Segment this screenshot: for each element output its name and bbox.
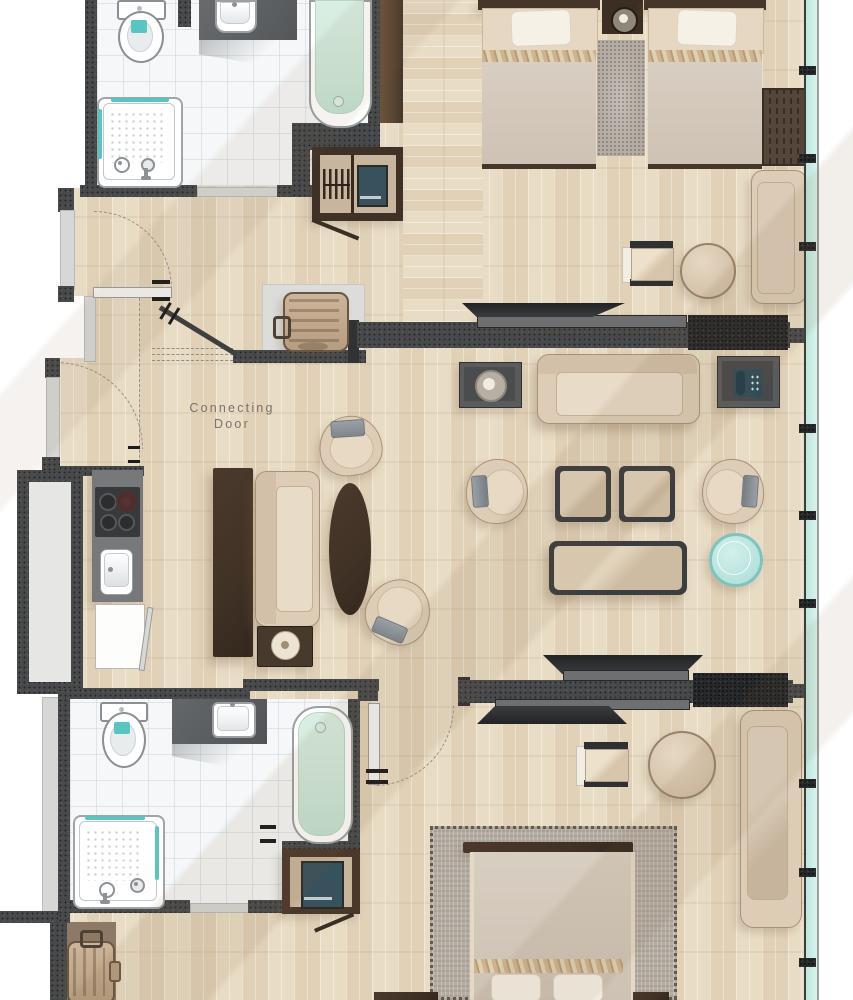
faucet-icon bbox=[232, 2, 237, 7]
glazed-panel bbox=[46, 377, 60, 460]
wall bbox=[58, 286, 74, 302]
wall-column bbox=[688, 315, 788, 350]
door-threshold bbox=[190, 903, 250, 913]
window-mullion bbox=[799, 154, 816, 163]
table-lamp-shade bbox=[483, 378, 495, 390]
exterior-gap bbox=[42, 296, 84, 358]
wall bbox=[58, 688, 250, 699]
suitcase-ribs bbox=[73, 948, 105, 996]
door-jamb bbox=[84, 296, 96, 362]
glazed-panel bbox=[60, 210, 75, 290]
toilet-flush bbox=[131, 20, 147, 33]
window-glass bbox=[806, 0, 817, 1000]
suitcase-handle bbox=[273, 316, 291, 339]
door-post-marker bbox=[260, 839, 276, 843]
wall bbox=[358, 679, 378, 701]
window-mullion bbox=[799, 66, 816, 75]
window-mullion bbox=[799, 868, 816, 877]
chair-arm bbox=[584, 742, 628, 749]
nightstand bbox=[374, 992, 438, 1000]
shower-drain bbox=[114, 157, 130, 173]
armchair bbox=[465, 458, 527, 523]
door-handle-marker bbox=[366, 769, 388, 773]
bathtub-drain bbox=[333, 96, 344, 107]
window-frame-outer bbox=[817, 0, 819, 1000]
door-track-dash bbox=[152, 354, 233, 355]
shower-head-base bbox=[141, 176, 151, 180]
shower-floor-dots bbox=[85, 829, 143, 881]
door-handle-marker bbox=[366, 780, 388, 784]
shower-drain bbox=[130, 878, 145, 893]
safe-icon bbox=[357, 165, 388, 207]
faucet-icon bbox=[108, 567, 113, 572]
wall bbox=[58, 688, 70, 923]
coffee-table-top bbox=[554, 546, 682, 590]
burner-icon bbox=[116, 491, 137, 512]
pillow bbox=[510, 9, 571, 47]
chaise-cushion bbox=[757, 182, 795, 294]
window-mullion bbox=[799, 242, 816, 251]
round-table bbox=[680, 243, 736, 299]
wall bbox=[0, 911, 58, 923]
wall-column bbox=[693, 673, 788, 707]
safe-handle bbox=[360, 196, 381, 199]
sofa-seat bbox=[556, 372, 683, 416]
table-lamp-shade bbox=[619, 14, 628, 23]
suitcase-side-handle bbox=[109, 961, 121, 982]
door-handle-marker bbox=[152, 280, 170, 284]
burner-icon bbox=[99, 493, 117, 511]
bathroom-sink-basin bbox=[217, 706, 249, 731]
door-track-dash bbox=[152, 360, 233, 361]
door-post-marker bbox=[128, 446, 140, 449]
window-mullion bbox=[799, 599, 816, 608]
wall bbox=[248, 900, 283, 913]
shower-glass bbox=[155, 826, 159, 880]
oval-coffee-table bbox=[329, 483, 371, 615]
toilet-flush bbox=[114, 722, 130, 734]
tv-screen-living bbox=[563, 670, 689, 681]
shower-head-base bbox=[100, 900, 110, 904]
telephone-keypad bbox=[750, 374, 761, 392]
wardrobe-divider bbox=[351, 155, 354, 213]
connecting-door-label-line1: Connecting bbox=[172, 400, 292, 416]
round-table bbox=[648, 731, 716, 799]
sofa-seat bbox=[276, 486, 313, 612]
suitcase-shadow bbox=[298, 342, 328, 351]
twin-beds-rug bbox=[597, 40, 645, 156]
wood-floor-vestibule bbox=[403, 0, 483, 322]
wall bbox=[45, 358, 60, 378]
shower-drain-dot bbox=[118, 161, 122, 165]
shower-floor-dots bbox=[109, 111, 167, 163]
faucet-icon bbox=[230, 702, 235, 707]
duvet bbox=[648, 62, 762, 167]
wall bbox=[50, 923, 67, 1000]
window-mullion bbox=[799, 779, 816, 788]
pillow bbox=[330, 419, 365, 438]
shower-head-icon bbox=[99, 882, 115, 898]
armchair bbox=[701, 458, 763, 523]
kitchen-appliance bbox=[95, 604, 145, 669]
exterior-gap bbox=[60, 0, 85, 188]
door-handle-marker bbox=[152, 297, 170, 301]
door-post-marker bbox=[260, 825, 276, 829]
shower-glass bbox=[85, 816, 145, 820]
chaise-cushion bbox=[747, 726, 788, 900]
chair-arm bbox=[630, 241, 673, 248]
nightstand bbox=[633, 992, 669, 1000]
window-mullion bbox=[799, 958, 816, 967]
bed-foot bbox=[482, 164, 596, 169]
ottoman-top bbox=[560, 471, 606, 517]
connecting-door-label: Connecting Door bbox=[172, 400, 292, 432]
bed-runner bbox=[648, 50, 762, 62]
armchair bbox=[315, 412, 383, 478]
shower-glass bbox=[111, 98, 169, 102]
console-table bbox=[213, 468, 253, 657]
door-post-marker bbox=[128, 460, 140, 463]
sofa-back bbox=[256, 472, 276, 624]
minibar-icon bbox=[301, 861, 344, 909]
service-shaft-void bbox=[29, 482, 71, 682]
wall bbox=[85, 0, 97, 197]
bed-foot bbox=[648, 164, 762, 169]
glass-table-ring bbox=[717, 541, 751, 575]
pillow bbox=[741, 475, 759, 508]
wall bbox=[58, 188, 74, 212]
bed-runner bbox=[482, 50, 596, 62]
bathtub-drain bbox=[315, 722, 326, 733]
window-mullion bbox=[799, 424, 816, 433]
wall bbox=[178, 0, 191, 27]
minibar-handle bbox=[304, 897, 332, 900]
chair-seat bbox=[585, 749, 629, 782]
hotel-suite-floor-plan: Connecting Door bbox=[0, 0, 853, 1000]
pillow bbox=[471, 475, 489, 508]
wardrobe-rail bbox=[323, 184, 350, 186]
decor-bowl-center bbox=[281, 641, 289, 649]
telephone-handset bbox=[736, 371, 745, 395]
window-mullion bbox=[799, 511, 816, 520]
ottoman-top bbox=[624, 471, 670, 517]
burner-icon bbox=[118, 514, 135, 531]
pillow bbox=[491, 974, 541, 1000]
connecting-door-label-line2: Door bbox=[172, 416, 292, 432]
chair-seat bbox=[631, 248, 674, 281]
duvet bbox=[482, 62, 596, 167]
shower-glass bbox=[98, 109, 102, 159]
tv-icon-master bbox=[477, 706, 627, 724]
shower-drain-dot bbox=[134, 882, 138, 886]
suitcase-ribs bbox=[289, 298, 339, 342]
timber-wall-panel bbox=[380, 0, 403, 123]
burner-icon bbox=[100, 514, 117, 531]
pillow bbox=[676, 9, 737, 47]
door-threshold bbox=[197, 187, 279, 197]
pillow bbox=[553, 974, 603, 1000]
bed-runner bbox=[474, 959, 623, 973]
suitcase-handle bbox=[80, 930, 103, 948]
